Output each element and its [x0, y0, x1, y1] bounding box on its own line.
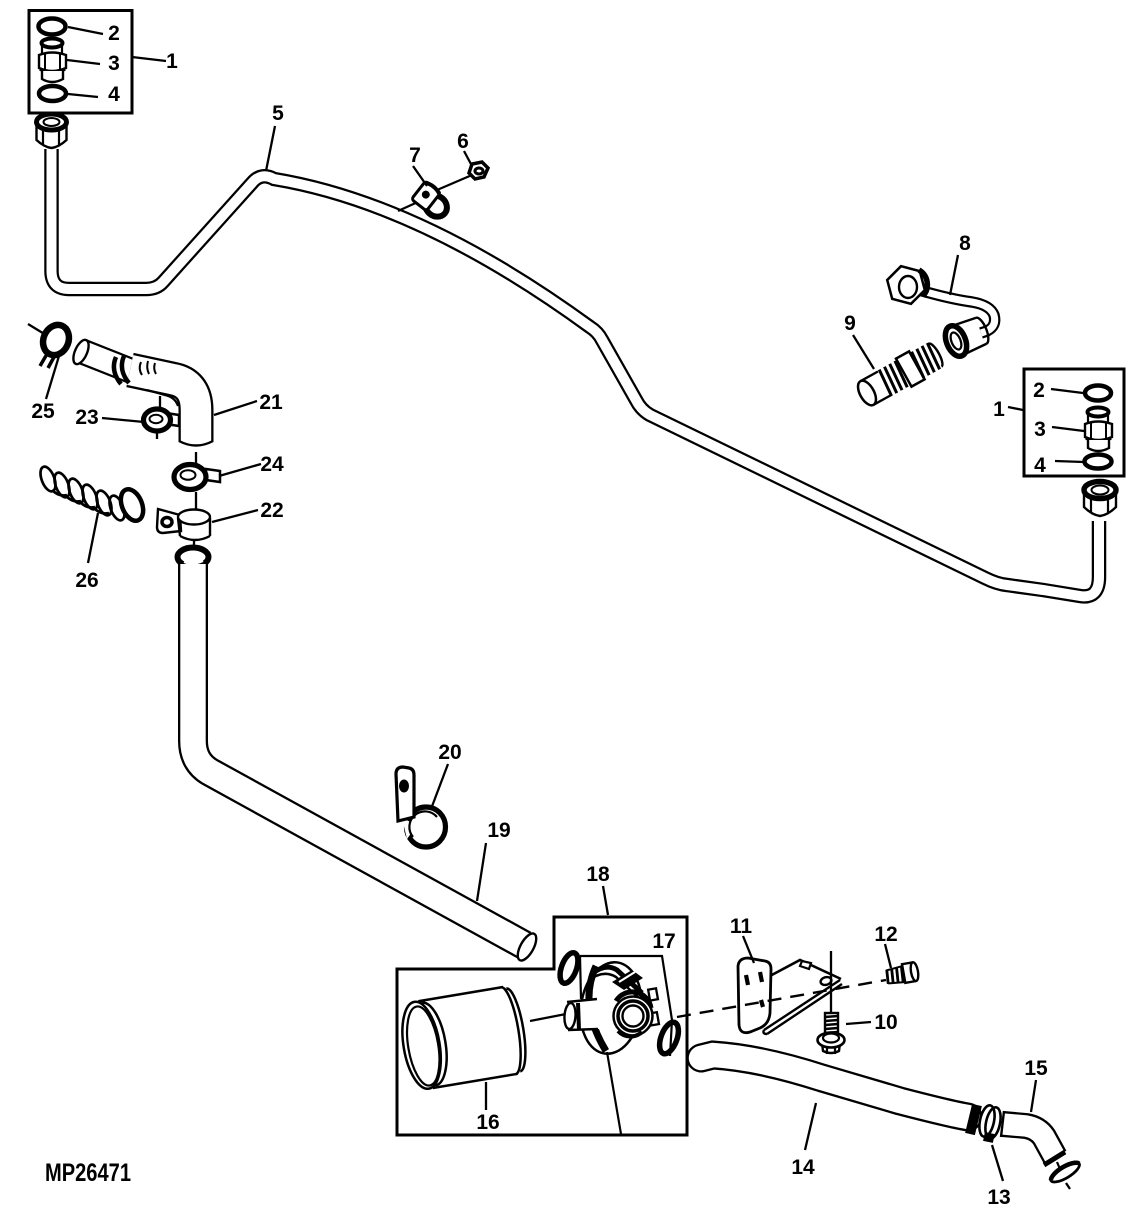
svg-text:8: 8: [959, 232, 971, 255]
svg-text:18: 18: [586, 863, 610, 886]
svg-text:14: 14: [791, 1156, 815, 1179]
svg-text:11: 11: [730, 915, 753, 938]
svg-text:13: 13: [987, 1186, 1010, 1209]
svg-text:23: 23: [75, 406, 98, 429]
svg-text:24: 24: [260, 453, 284, 476]
svg-text:26: 26: [75, 569, 98, 592]
svg-text:12: 12: [874, 923, 897, 946]
svg-text:1: 1: [166, 50, 178, 73]
svg-text:9: 9: [844, 312, 856, 335]
svg-text:16: 16: [476, 1111, 499, 1134]
svg-text:19: 19: [487, 819, 510, 842]
svg-text:17: 17: [652, 930, 675, 953]
svg-text:4: 4: [108, 83, 120, 106]
svg-text:25: 25: [31, 400, 55, 423]
svg-text:2: 2: [108, 22, 120, 45]
svg-text:7: 7: [409, 144, 421, 167]
svg-text:4: 4: [1034, 454, 1046, 477]
svg-text:5: 5: [272, 102, 284, 125]
svg-text:MP26471: MP26471: [45, 1159, 131, 1187]
svg-text:22: 22: [260, 499, 283, 522]
svg-text:2: 2: [1033, 379, 1045, 402]
svg-text:10: 10: [874, 1011, 897, 1034]
svg-text:6: 6: [457, 130, 469, 153]
svg-text:20: 20: [438, 741, 461, 764]
svg-text:15: 15: [1024, 1057, 1048, 1080]
svg-text:21: 21: [259, 391, 283, 414]
svg-text:3: 3: [108, 52, 120, 75]
svg-text:3: 3: [1034, 418, 1046, 441]
svg-text:1: 1: [993, 398, 1005, 421]
